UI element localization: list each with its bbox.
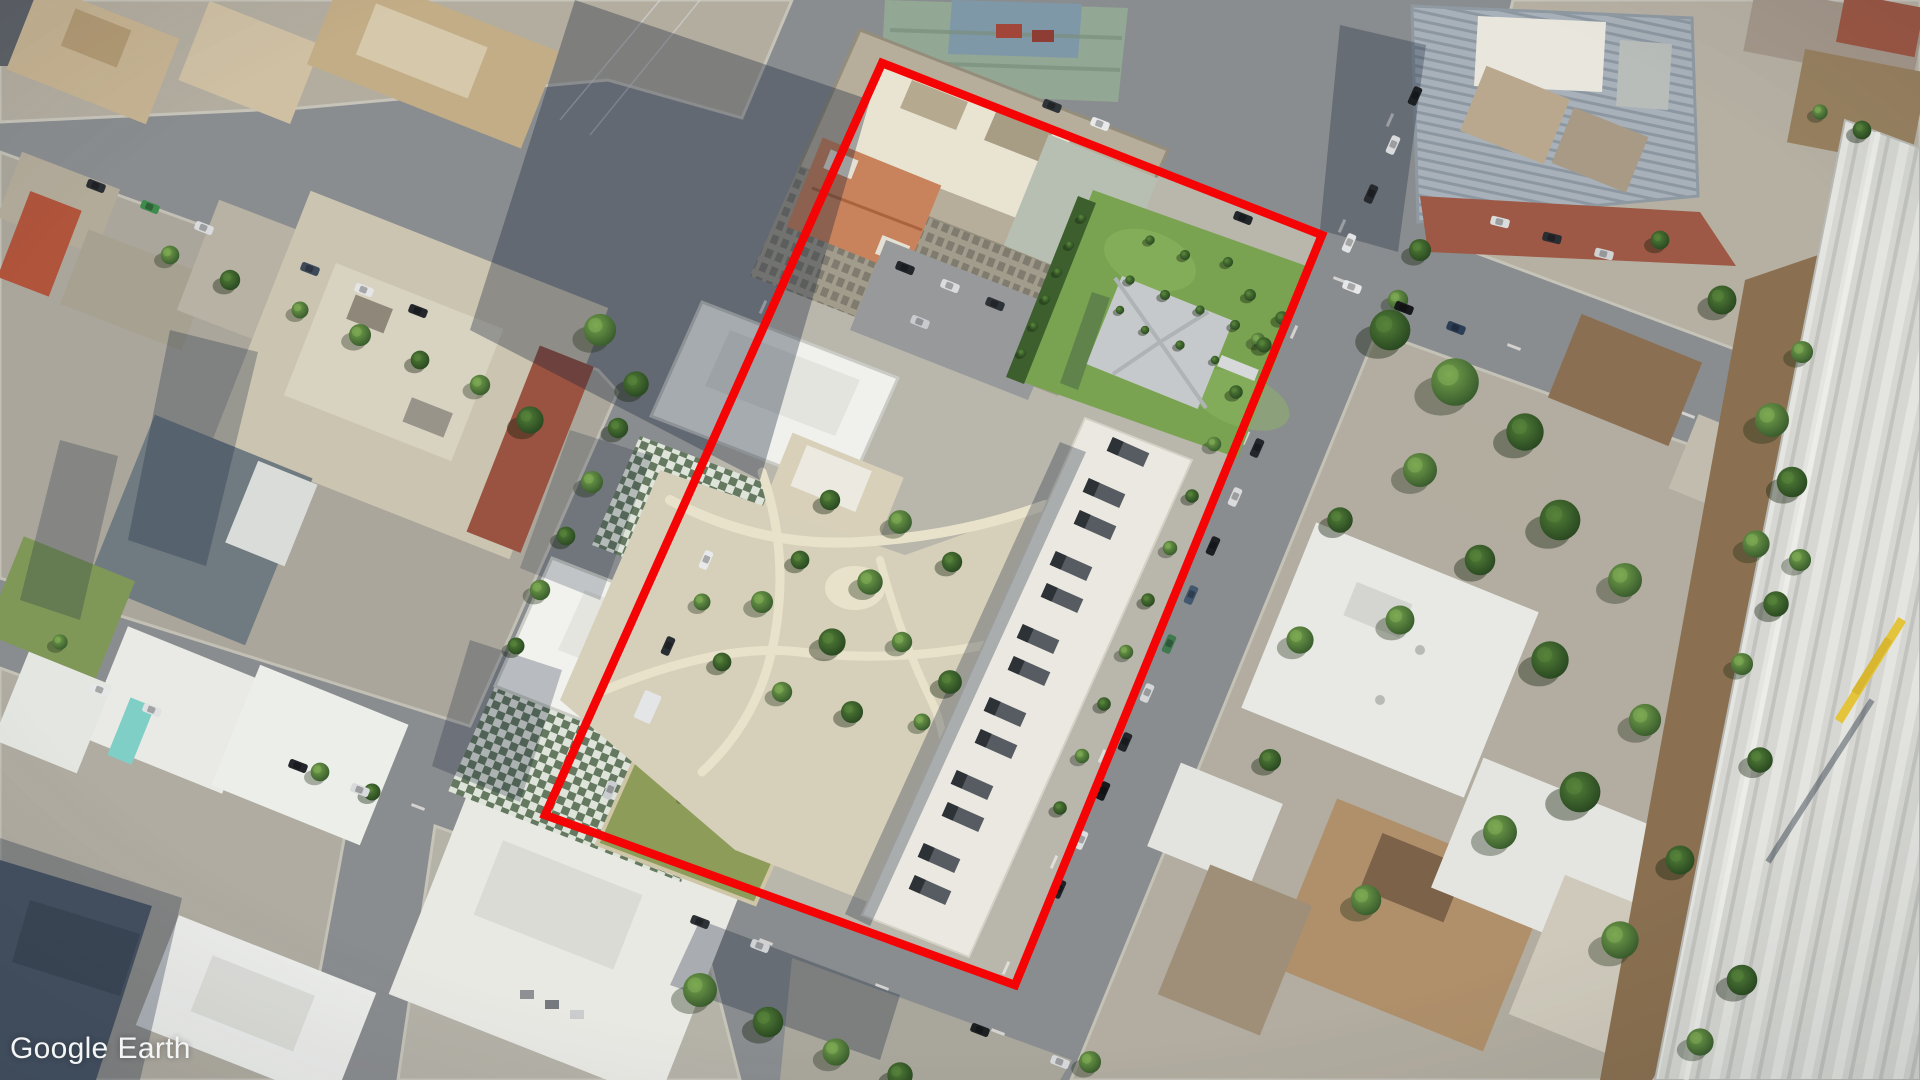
google-earth-viewport[interactable]: GoogleEarth — [0, 0, 1920, 1080]
watermark-earth: Earth — [118, 1032, 191, 1065]
vignette-overlay — [0, 0, 1920, 1080]
watermark-google: Google — [10, 1032, 109, 1065]
satellite-scene — [0, 0, 1920, 1080]
google-earth-watermark: GoogleEarth — [10, 1032, 191, 1066]
